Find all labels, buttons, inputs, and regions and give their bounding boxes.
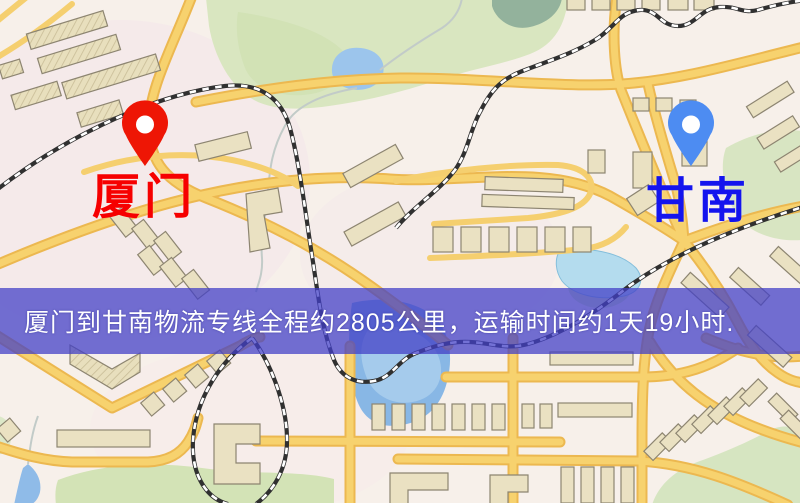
route-info-text: 厦门到甘南物流专线全程约2805公里，运输时间约1天19小时. bbox=[0, 303, 734, 339]
destination-city-label: 甘南 bbox=[646, 178, 750, 226]
origin-city-label: 厦门 bbox=[92, 174, 196, 222]
route-info-banner: 厦门到甘南物流专线全程约2805公里，运输时间约1天19小时. bbox=[0, 288, 800, 354]
logistics-route-map-image: 厦门 甘南 厦门到甘南物流专线全程约2805公里，运输时间约1天19小时. bbox=[0, 0, 800, 503]
map-canvas bbox=[0, 0, 800, 503]
